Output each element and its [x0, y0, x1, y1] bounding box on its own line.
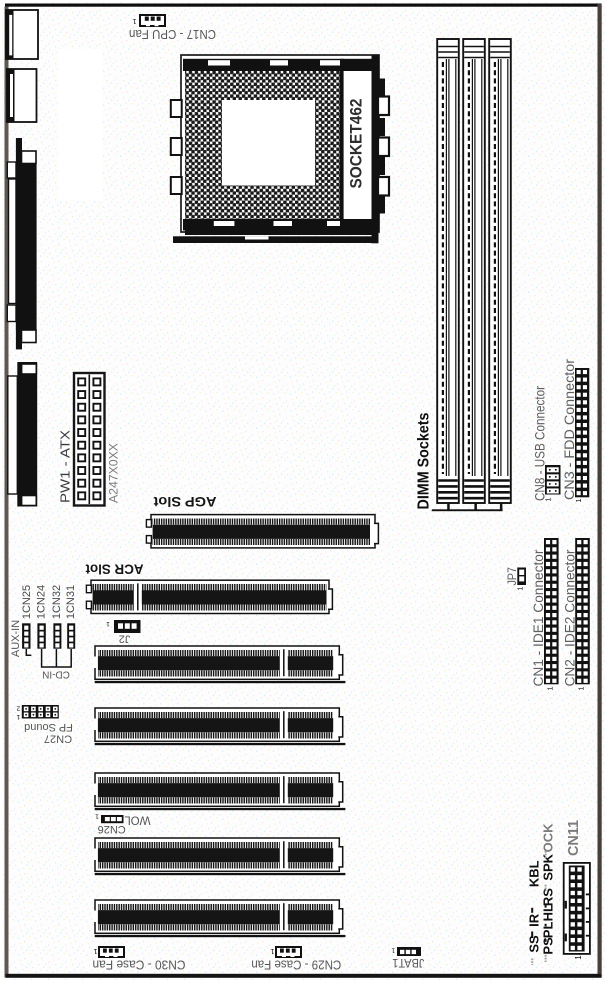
svg-text:1: 1 — [577, 686, 586, 690]
svg-text:RS: RS — [541, 888, 556, 906]
svg-text:IR: IR — [527, 913, 542, 927]
svg-text:PL: PL — [541, 922, 556, 939]
svg-text:1: 1 — [518, 586, 525, 590]
svg-text:CN29 - Case Fan: CN29 - Case Fan — [251, 958, 341, 972]
svg-text:CN30 - Case Fan: CN30 - Case Fan — [92, 958, 185, 972]
svg-text:1CN32: 1CN32 — [51, 585, 63, 619]
svg-text:CN1 - IDE1 Connector: CN1 - IDE1 Connector — [530, 549, 546, 686]
svg-text:1CN24: 1CN24 — [35, 585, 47, 619]
svg-text:JBAT1: JBAT1 — [392, 956, 424, 968]
svg-text:1: 1 — [16, 713, 20, 720]
svg-text:1: 1 — [270, 947, 274, 954]
svg-text:CN11: CN11 — [565, 820, 582, 856]
svg-text:PW1 - ATX: PW1 - ATX — [58, 430, 73, 503]
svg-text:SPK: SPK — [541, 853, 556, 880]
svg-text:AUX-IN: AUX-IN — [10, 620, 22, 657]
svg-text:CN3 - FDD Connector: CN3 - FDD Connector — [561, 359, 577, 500]
svg-text:CN17 - CPU Fan: CN17 - CPU Fan — [129, 27, 216, 41]
svg-text:AGP Slot: AGP Slot — [153, 494, 216, 510]
svg-text:DIMM Sockets: DIMM Sockets — [416, 413, 433, 510]
svg-text:FP Sound: FP Sound — [24, 721, 73, 733]
svg-text:CD-IN: CD-IN — [42, 668, 70, 679]
svg-text:1: 1 — [391, 947, 395, 954]
svg-text:PS: PS — [541, 937, 556, 955]
svg-text:CN2 - IDE2 Connector: CN2 - IDE2 Connector — [561, 549, 577, 686]
svg-text:A247X0XX: A247X0XX — [109, 443, 121, 503]
svg-text:J2: J2 — [119, 633, 131, 645]
svg-text:1: 1 — [94, 947, 98, 954]
svg-text:1: 1 — [574, 955, 583, 960]
svg-text:1CN31: 1CN31 — [65, 585, 77, 619]
svg-text:SS: SS — [527, 935, 542, 953]
svg-text:1: 1 — [546, 686, 555, 690]
svg-text:1: 1 — [95, 812, 99, 819]
svg-text:CN26: CN26 — [98, 823, 126, 835]
svg-text:CN27: CN27 — [44, 733, 72, 745]
svg-text:JP7: JP7 — [505, 567, 519, 586]
svg-text:ACR Slot: ACR Slot — [85, 562, 143, 578]
svg-text:1CN25: 1CN25 — [21, 585, 33, 619]
svg-text:2: 2 — [16, 704, 20, 711]
svg-text:CN8 - USB Connector: CN8 - USB Connector — [531, 386, 547, 501]
svg-text:OCK: OCK — [541, 823, 556, 853]
svg-text:1: 1 — [106, 620, 110, 627]
svg-text:1: 1 — [132, 17, 136, 24]
svg-text:WOL: WOL — [124, 813, 151, 825]
svg-text:SOCKET462: SOCKET462 — [348, 99, 366, 189]
svg-text:KBL: KBL — [527, 860, 542, 887]
